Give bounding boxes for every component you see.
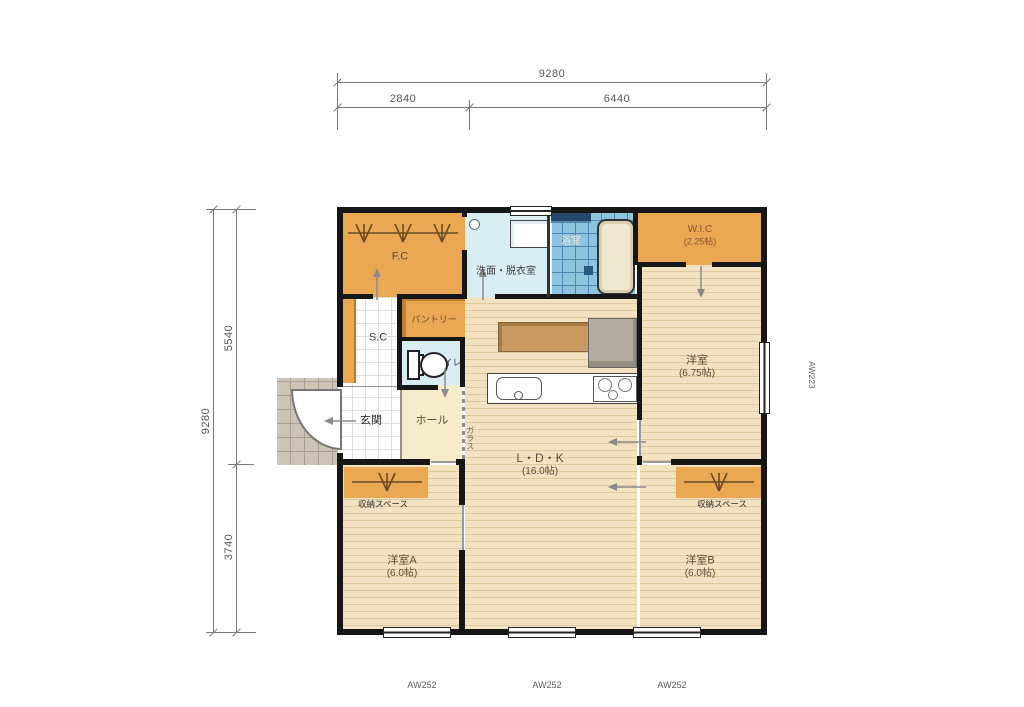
wall-segment bbox=[337, 294, 373, 299]
wall-segment bbox=[761, 207, 767, 342]
window-top bbox=[510, 206, 552, 216]
wall-segment bbox=[337, 459, 430, 465]
dimension-top-seg2-value: 6440 bbox=[604, 93, 630, 105]
sliding-door bbox=[643, 461, 671, 463]
wall-segment bbox=[547, 207, 550, 297]
wall-segment bbox=[761, 412, 767, 635]
wall-segment bbox=[637, 262, 686, 267]
wall-segment bbox=[671, 459, 767, 465]
window-code-bottom-1: AW252 bbox=[407, 680, 436, 690]
hanger-rod-icon bbox=[352, 471, 422, 493]
label-bedroom-b-size: (6.0帖) bbox=[685, 568, 716, 580]
window-code-right: AW223 bbox=[807, 361, 817, 389]
dimension-top-seg1-value: 2840 bbox=[390, 93, 416, 105]
refrigerator-icon bbox=[588, 318, 637, 368]
window-right bbox=[759, 342, 770, 414]
sink-drain bbox=[514, 391, 523, 400]
sliding-door bbox=[431, 461, 456, 463]
window-code-bottom-3: AW252 bbox=[657, 680, 686, 690]
label-washroom: 洗面・脱衣室 bbox=[476, 266, 536, 278]
wall-segment bbox=[397, 294, 402, 390]
washer-icon bbox=[469, 219, 480, 230]
bathtub-icon bbox=[597, 219, 635, 295]
dimension-left-seg1-value: 5540 bbox=[223, 325, 235, 351]
flow-arrow-icon bbox=[606, 480, 648, 494]
label-bedroom-size: (6.75帖) bbox=[679, 368, 715, 380]
floor-plan-canvas: 9280 2840 6440 9280 5540 3740 bbox=[0, 0, 1024, 707]
wall-segment bbox=[402, 337, 465, 341]
stove-burner bbox=[608, 390, 618, 400]
wall-segment bbox=[550, 294, 637, 299]
label-ldk-size: (16.0帖) bbox=[522, 466, 558, 478]
label-shoe-closet: S.C bbox=[369, 331, 387, 344]
wall-segment bbox=[337, 207, 767, 213]
dimension-line-top-total bbox=[337, 82, 767, 83]
shoe-closet-shelf bbox=[341, 299, 356, 383]
wall-segment bbox=[398, 294, 465, 299]
wall-segment bbox=[460, 341, 465, 387]
label-pantry: パントリー bbox=[411, 315, 456, 326]
window-bottom-1 bbox=[383, 627, 451, 638]
label-bedroom-a: 洋室A bbox=[387, 554, 416, 567]
wall-segment bbox=[637, 456, 642, 465]
window-code-bottom-2: AW252 bbox=[532, 680, 561, 690]
dimension-line-top-segments bbox=[337, 107, 767, 108]
wall-segment bbox=[637, 262, 642, 420]
wall-segment bbox=[633, 207, 638, 265]
wall-segment bbox=[337, 453, 343, 635]
label-bath: 浴室 bbox=[561, 236, 581, 248]
label-bedroom-b: 洋室B bbox=[685, 554, 714, 567]
sliding-door bbox=[462, 505, 464, 550]
flow-arrow-icon bbox=[322, 414, 358, 428]
kitchen-cupboard bbox=[498, 322, 592, 352]
stove-burner bbox=[618, 378, 632, 392]
wall-segment bbox=[495, 294, 550, 299]
flow-arrow-icon bbox=[438, 366, 452, 400]
dimension-top-total-value: 9280 bbox=[539, 68, 565, 80]
flow-arrow-icon bbox=[694, 264, 708, 300]
vanity-sink-icon bbox=[510, 220, 548, 248]
label-storage-a: 収納スペース bbox=[358, 499, 408, 509]
label-wic-size: (2.25帖) bbox=[684, 237, 717, 248]
dimension-left-total-value: 9280 bbox=[200, 408, 212, 434]
dimension-extension-line bbox=[228, 464, 254, 465]
window-bottom-3 bbox=[633, 627, 701, 638]
label-glass: ガラス bbox=[465, 426, 475, 450]
dimension-left-seg2-value: 3740 bbox=[223, 534, 235, 560]
wall-segment bbox=[712, 262, 764, 267]
dimension-line-left-segments bbox=[236, 209, 237, 633]
threshold-line bbox=[340, 386, 398, 387]
sliding-door bbox=[639, 420, 641, 456]
wall-segment bbox=[459, 459, 465, 505]
bath-faucet-icon bbox=[584, 266, 593, 275]
label-family-closet: F.C bbox=[392, 250, 409, 263]
window-bottom-2 bbox=[508, 627, 576, 638]
wall-segment bbox=[402, 385, 438, 390]
dimension-line-left-total bbox=[213, 209, 214, 633]
label-entrance: 玄関 bbox=[360, 414, 382, 427]
threshold-line bbox=[400, 387, 402, 462]
label-ldk: L・D・K bbox=[516, 451, 563, 465]
flow-arrow-icon bbox=[606, 435, 648, 449]
wall-segment bbox=[462, 207, 467, 217]
label-wic: W.I.C bbox=[688, 224, 712, 236]
wall-segment bbox=[459, 550, 465, 635]
wall-segment bbox=[462, 250, 467, 299]
label-bedroom-a-size: (6.0帖) bbox=[387, 568, 418, 580]
label-bedroom: 洋室 bbox=[686, 354, 708, 367]
hanger-rod-icon bbox=[348, 222, 458, 244]
hanger-rod-icon bbox=[684, 471, 754, 493]
label-storage-b: 収納スペース bbox=[697, 499, 747, 509]
label-hall: ホール bbox=[416, 414, 449, 427]
